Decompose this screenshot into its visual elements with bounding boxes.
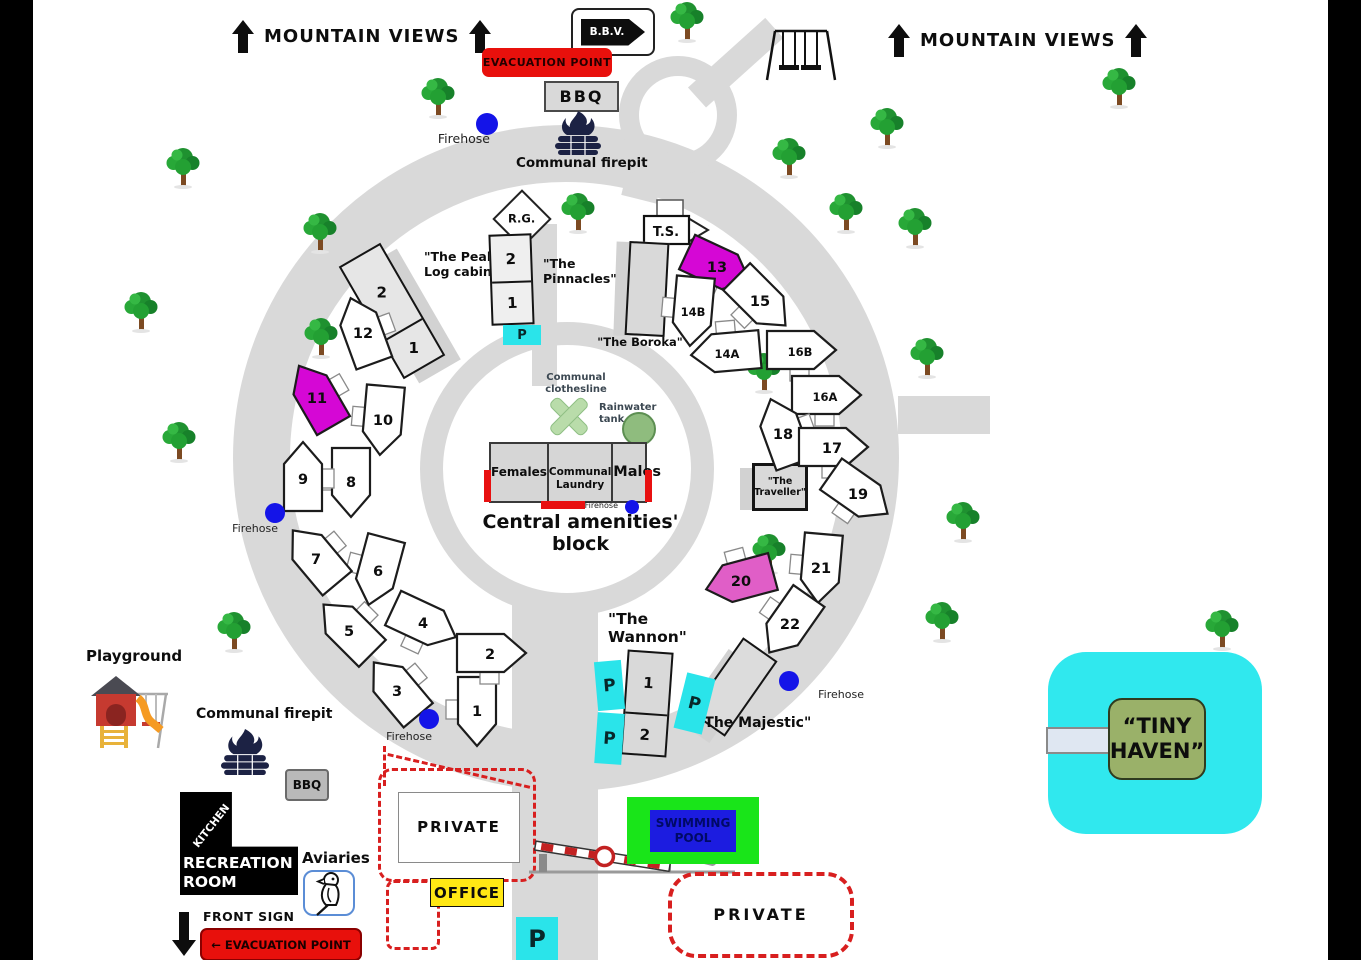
svg-text:15: 15 xyxy=(750,294,770,310)
down-arrow-icon xyxy=(172,912,196,956)
mountain-views-right: MOUNTAIN VIEWS xyxy=(888,24,1147,58)
rainwater-tank-icon xyxy=(622,412,656,446)
parking-badge: P xyxy=(680,675,709,732)
pinnacles-label: "The Pinnacles" xyxy=(543,257,617,287)
site-marker-19: 19 xyxy=(829,452,887,534)
svg-text:14A: 14A xyxy=(715,347,740,361)
firepit-icon xyxy=(214,728,276,780)
tree-icon xyxy=(770,136,808,184)
boroka-cabin xyxy=(625,241,670,337)
private-area-lower: PRIVATE xyxy=(668,872,854,958)
recreation-room-building: KITCHEN RECREATION ROOM xyxy=(180,792,298,895)
svg-text:T.S.: T.S. xyxy=(653,225,679,240)
tree-icon xyxy=(559,191,597,239)
bbq-label: BBQ xyxy=(293,778,322,792)
firehose-label: Firehose xyxy=(794,688,864,701)
amenities-door-left xyxy=(484,470,491,502)
firehose-dot xyxy=(625,500,639,514)
aviaries-label: Aviaries xyxy=(302,850,370,868)
evacuation-point-label: ← EVACUATION POINT xyxy=(211,938,350,952)
tree-icon xyxy=(668,0,706,48)
tree-icon xyxy=(419,76,457,124)
svg-text:10: 10 xyxy=(373,413,393,429)
tree-icon xyxy=(868,106,906,154)
evacuation-point-sign-bottom: ← EVACUATION POINT xyxy=(200,928,362,960)
firehose-label: Firehose xyxy=(208,522,278,535)
tree-icon xyxy=(215,610,253,658)
playground-icon xyxy=(88,672,170,754)
wannon-cabin: 1 2 xyxy=(620,650,673,758)
letterbox-right xyxy=(1328,0,1361,960)
up-arrow-icon xyxy=(1125,24,1147,58)
firehose-label: Firehose xyxy=(548,501,618,510)
males-room: Males xyxy=(613,464,661,481)
up-arrow-icon xyxy=(888,24,910,58)
svg-text:4: 4 xyxy=(418,616,428,632)
svg-text:21: 21 xyxy=(811,561,831,577)
majestic-label: "The Majestic" xyxy=(697,715,812,732)
firehose-label: Firehose xyxy=(420,131,490,146)
svg-text:16A: 16A xyxy=(813,390,838,404)
office-sign: OFFICE xyxy=(430,878,504,907)
firepit-icon xyxy=(549,110,607,160)
svg-text:8: 8 xyxy=(346,475,356,491)
wannon-site-2: 2 xyxy=(639,725,651,744)
svg-text:6: 6 xyxy=(373,564,383,580)
tree-icon xyxy=(1100,66,1138,114)
private-label: PRIVATE xyxy=(713,906,808,925)
aviary-bird-icon xyxy=(303,870,355,916)
tiny-haven-sign: “TINY HAVEN” xyxy=(1108,698,1206,780)
svg-text:3: 3 xyxy=(392,684,402,700)
mountain-views-label: MOUNTAIN VIEWS xyxy=(264,26,459,47)
private-label: PRIVATE xyxy=(417,819,501,837)
playground-label: Playground xyxy=(86,648,182,666)
letterbox-left xyxy=(0,0,33,960)
up-arrow-icon xyxy=(232,20,254,54)
pinnacles-site-1: 1 xyxy=(507,294,518,312)
amenities-title: Central amenities' block xyxy=(463,511,698,556)
park-map: MOUNTAIN VIEWS MOUNTAIN VIEWS B.B.V. EVA… xyxy=(0,0,1361,960)
mountain-views-left: MOUNTAIN VIEWS xyxy=(232,20,491,54)
wannon-site-1: 1 xyxy=(643,674,655,693)
svg-text:12: 12 xyxy=(353,326,373,342)
parking-badge: P xyxy=(596,713,623,764)
tiny-haven-label: “TINY HAVEN” xyxy=(1110,714,1204,764)
site-marker-22: 22 xyxy=(761,582,819,664)
tree-icon xyxy=(827,191,865,239)
tree-icon xyxy=(122,290,160,338)
swing-set-icon xyxy=(765,25,837,85)
tree-icon xyxy=(944,500,982,548)
firehose-dot xyxy=(265,503,285,523)
svg-text:22: 22 xyxy=(780,617,800,633)
svg-text:9: 9 xyxy=(298,472,308,488)
road-east xyxy=(898,396,990,434)
rg-label: R.G. xyxy=(508,212,535,226)
bbv-label: B.B.V. xyxy=(590,26,625,38)
svg-text:1: 1 xyxy=(472,704,482,720)
private-building-upper: PRIVATE xyxy=(398,792,520,863)
peaks-site-1: 1 xyxy=(408,339,418,357)
svg-text:18: 18 xyxy=(773,427,793,443)
svg-text:19: 19 xyxy=(848,487,868,503)
swimming-pool-sign: SWIMMING POOL xyxy=(650,810,736,852)
recreation-room-label: RECREATION ROOM xyxy=(183,854,293,893)
svg-text:7: 7 xyxy=(311,552,321,568)
tree-icon xyxy=(164,146,202,194)
site-marker-12: 12 xyxy=(334,291,392,373)
tree-icon xyxy=(896,206,934,254)
swimming-pool-label: SWIMMING POOL xyxy=(656,816,731,844)
females-room: Females xyxy=(491,465,547,479)
site-marker-7: 7 xyxy=(287,517,345,599)
tree-icon xyxy=(301,211,339,259)
clothesline-label: Communal clothesline xyxy=(536,372,616,396)
bbq-sign-lower: BBQ xyxy=(285,769,329,801)
tree-icon xyxy=(1203,608,1241,656)
site-marker-10: 10 xyxy=(354,378,412,460)
evacuation-point-label: EVACUATION POINT xyxy=(483,56,611,69)
firehose-label: Firehose xyxy=(362,730,432,743)
tree-icon xyxy=(160,420,198,468)
wannon-label: "The Wannon" xyxy=(608,610,687,647)
parking-badge: P xyxy=(596,661,623,710)
site-marker-14A: 14A xyxy=(698,311,756,393)
front-sign-label: FRONT SIGN xyxy=(203,910,295,925)
communal-firepit-label-top: Communal firepit xyxy=(516,156,648,172)
parking-badge: P xyxy=(503,325,541,345)
bbq-label: BBQ xyxy=(560,87,604,106)
laundry-room: Communal Laundry xyxy=(549,466,611,491)
svg-text:11: 11 xyxy=(307,391,327,407)
kitchen-label: KITCHEN xyxy=(191,802,233,850)
evacuation-point-sign-top: EVACUATION POINT xyxy=(482,48,612,77)
pinnacles-site-2: 2 xyxy=(505,250,516,268)
pinnacles-cabin: 2 1 xyxy=(488,233,534,325)
tiny-haven-post xyxy=(1046,727,1112,754)
firehose-dot xyxy=(419,709,439,729)
site-marker-2: 2 xyxy=(461,612,519,694)
mountain-views-label: MOUNTAIN VIEWS xyxy=(920,30,1115,51)
traveller-label: "The Traveller" xyxy=(754,476,806,498)
bbv-arrow-icon: B.B.V. xyxy=(581,19,645,46)
svg-text:2: 2 xyxy=(485,647,495,663)
site-marker-6: 6 xyxy=(349,529,407,611)
swimming-pool: SWIMMING POOL xyxy=(627,797,759,864)
parking-badge: P xyxy=(516,917,558,960)
bbq-sign-top: BBQ xyxy=(544,81,619,112)
tree-icon xyxy=(923,600,961,648)
communal-firepit-label-lower: Communal firepit xyxy=(196,706,332,723)
tree-icon xyxy=(908,336,946,384)
road-pinnacles-spur xyxy=(532,224,557,386)
svg-text:20: 20 xyxy=(731,574,751,590)
amenities-door-right xyxy=(645,470,652,502)
svg-text:5: 5 xyxy=(344,624,354,640)
amenities-block: Females Communal Laundry Males xyxy=(489,442,647,503)
office-label: OFFICE xyxy=(434,884,500,902)
